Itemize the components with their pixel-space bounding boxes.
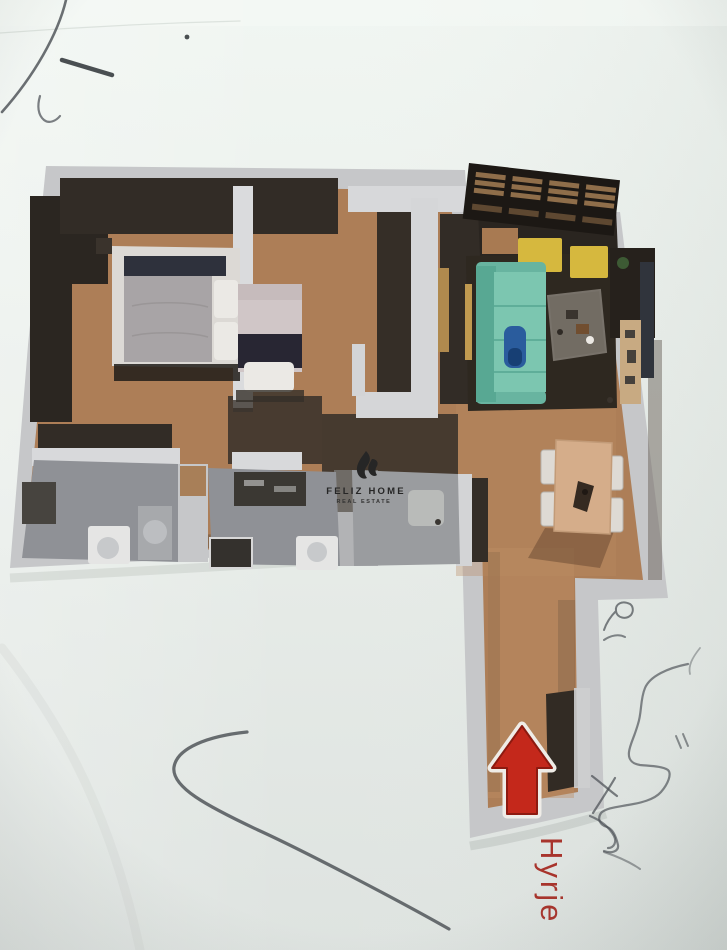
photo-canvas: FELIZ HOME REAL ESTATE Hyrje (0, 0, 727, 950)
floorplan-photo: FELIZ HOME REAL ESTATE Hyrje (0, 0, 727, 950)
vignette-overlay (0, 0, 727, 950)
